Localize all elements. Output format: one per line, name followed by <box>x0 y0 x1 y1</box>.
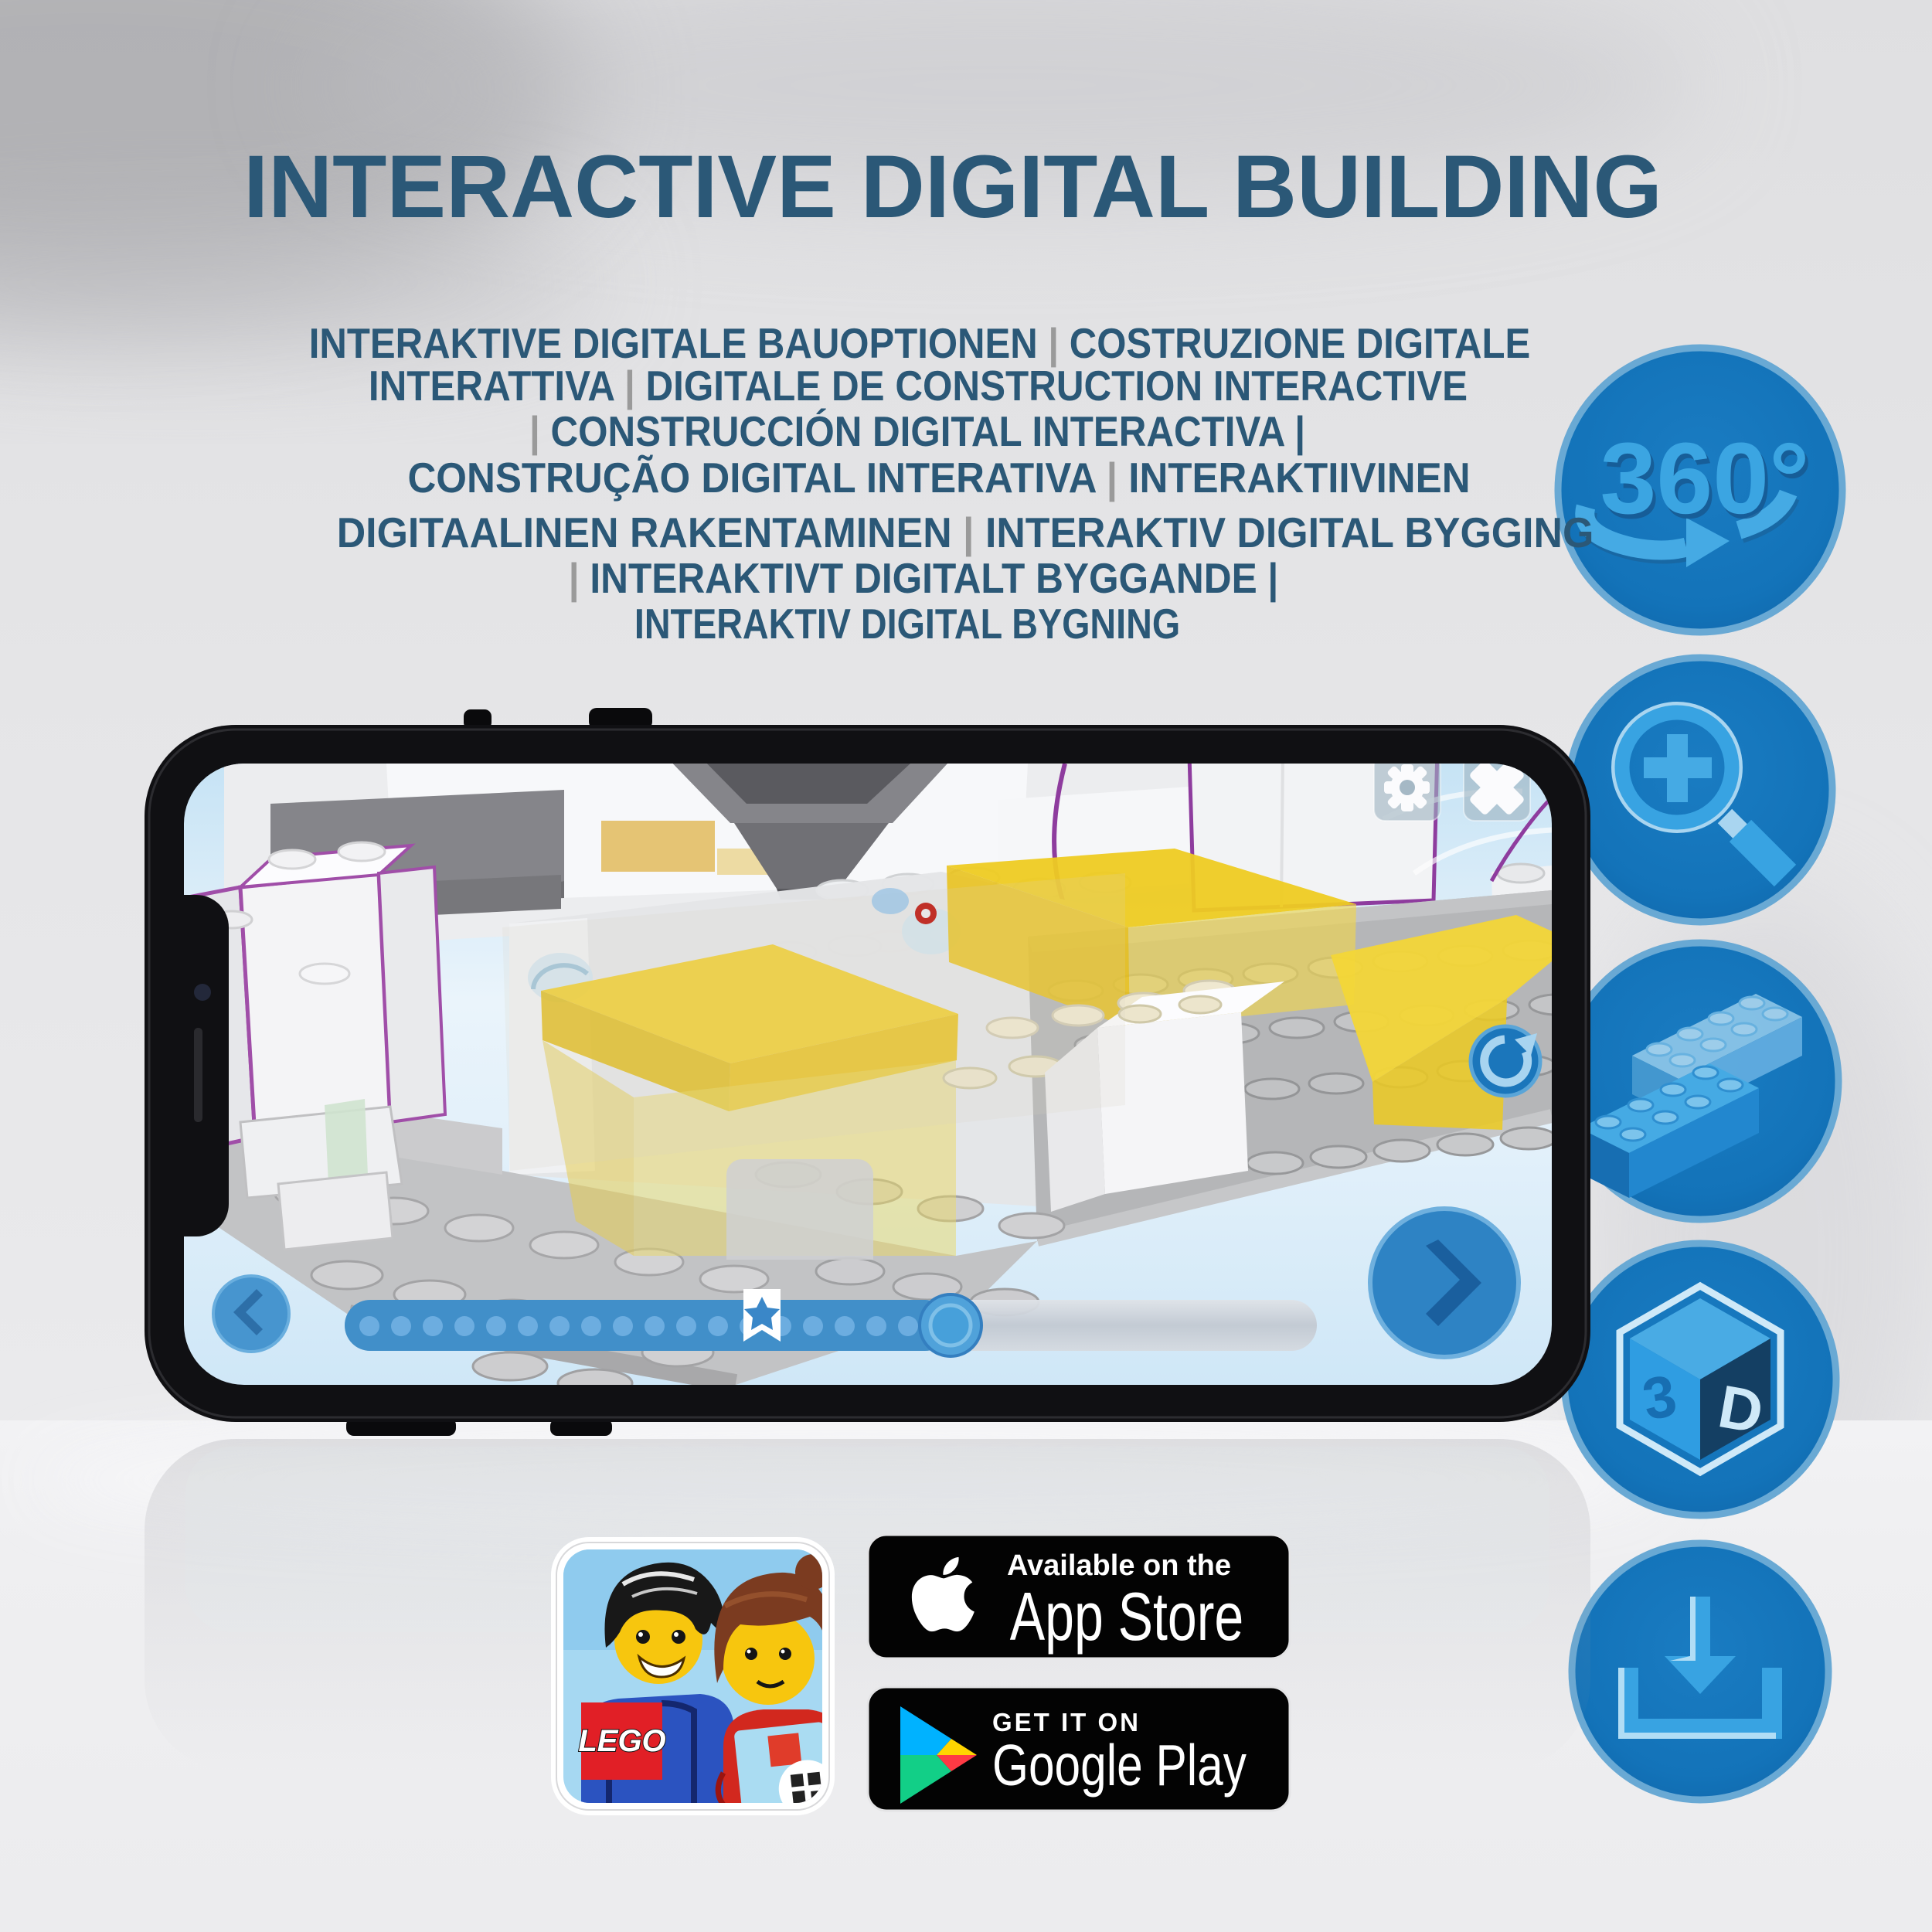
svg-text:INTERAKTIVE DIGITALE BAUOPTION: INTERAKTIVE DIGITALE BAUOPTIONEN | COSTR… <box>309 320 1530 367</box>
svg-text:CONSTRUÇÃO DIGITAL INTERATIVA: CONSTRUÇÃO DIGITAL INTERATIVA | INTERAKT… <box>407 454 1470 502</box>
svg-text:Available on the: Available on the <box>1007 1549 1231 1582</box>
svg-text:360°: 360° <box>1600 421 1810 535</box>
svg-text:INTERATTIVA | DIGITALE DE CONS: INTERATTIVA | DIGITALE DE CONSTRUCTION I… <box>369 363 1468 410</box>
svg-text:| INTERAKTIVT DIGITALT BYGGAND: | INTERAKTIVT DIGITALT BYGGANDE | <box>569 556 1279 603</box>
svg-text:| CONSTRUCCIÓN DIGITAL INTERAC: | CONSTRUCCIÓN DIGITAL INTERACTIVA | <box>529 409 1305 456</box>
svg-text:LEGO: LEGO <box>578 1724 665 1758</box>
svg-text:App Store: App Store <box>1010 1579 1243 1655</box>
svg-text:Google Play: Google Play <box>992 1733 1247 1798</box>
svg-text:DIGITAALINEN RAKENTAMINEN | IN: DIGITAALINEN RAKENTAMINEN | INTERAKTIV D… <box>337 510 1594 558</box>
svg-text:INTERACTIVE DIGITAL BUILDING: INTERACTIVE DIGITAL BUILDING <box>243 138 1662 236</box>
svg-text:GET IT ON: GET IT ON <box>992 1708 1141 1736</box>
svg-text:INTERAKTIV DIGITAL BYGNING: INTERAKTIV DIGITAL BYGNING <box>634 600 1180 647</box>
